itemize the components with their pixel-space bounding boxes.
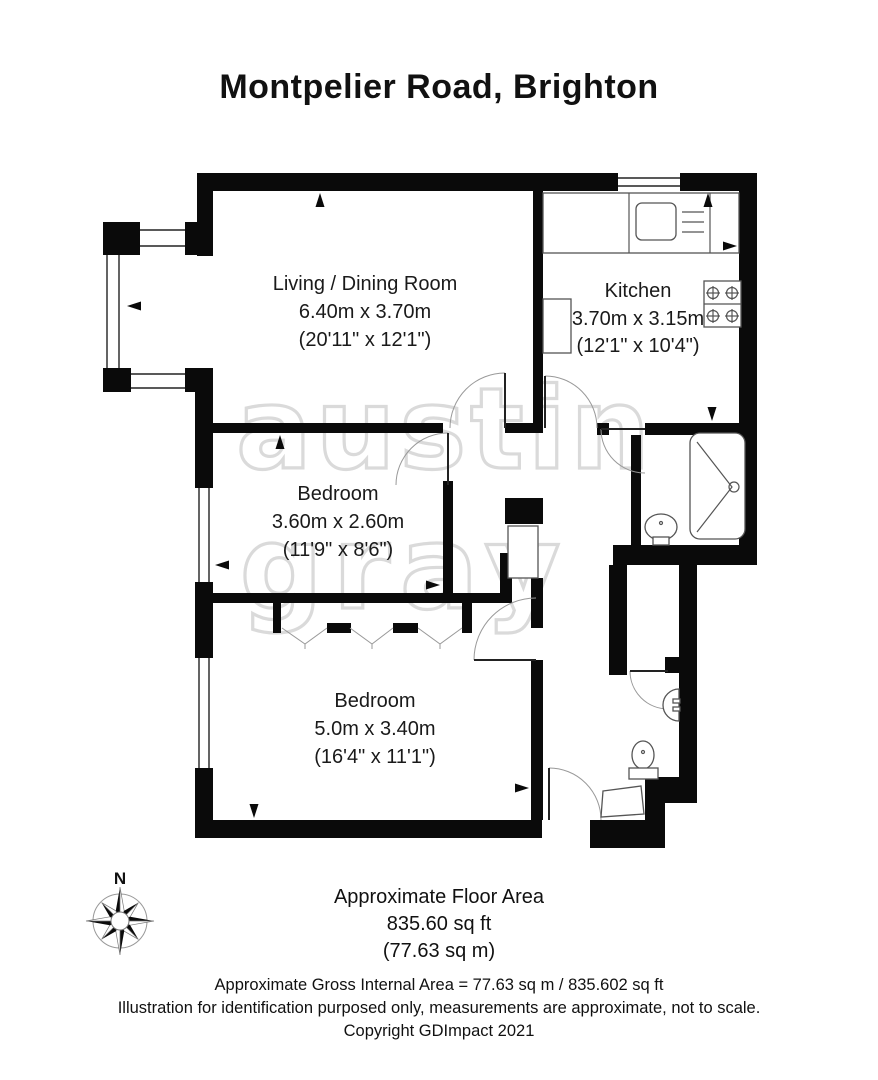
bathtub <box>690 433 745 539</box>
window-kitchen <box>618 173 680 191</box>
window-bedroom1 <box>199 488 209 582</box>
label-kitchen: Kitchen 3.70m x 3.15m (12'1" x 10'4") <box>572 280 704 357</box>
copyright-text: Copyright GDImpact 2021 <box>0 1020 878 1043</box>
bathroom-fixtures <box>645 433 745 545</box>
wc-fixtures <box>629 689 680 779</box>
floor-area-sqm: (77.63 sq m) <box>0 938 878 965</box>
svg-text:Living / Dining Room: Living / Dining Room <box>273 273 458 295</box>
page-title: Montpelier Road, Brighton <box>0 68 878 107</box>
floor-area-summary: Approximate Floor Area 835.60 sq ft (77.… <box>0 884 878 965</box>
door-entrance <box>549 768 601 820</box>
label-bedroom2: Bedroom 5.0m x 3.40m (16'4" x 11'1") <box>314 690 436 768</box>
floor-area-sqft: 835.60 sq ft <box>0 911 878 938</box>
disclaimer-text: Illustration for identification purposed… <box>0 997 878 1020</box>
gross-internal-area: Approximate Gross Internal Area = 77.63 … <box>0 974 878 997</box>
hall-cupboard <box>508 526 538 578</box>
svg-text:(20'11" x 12'1"): (20'11" x 12'1") <box>299 329 432 351</box>
svg-text:3.60m x 2.60m: 3.60m x 2.60m <box>272 511 404 533</box>
hob <box>704 281 741 327</box>
disclaimer-footer: Approximate Gross Internal Area = 77.63 … <box>0 974 878 1043</box>
svg-text:(11'9" x 8'6"): (11'9" x 8'6") <box>283 539 393 561</box>
floor-area-heading: Approximate Floor Area <box>0 884 878 911</box>
svg-text:6.40m x 3.70m: 6.40m x 3.70m <box>299 301 431 323</box>
bathroom-basin <box>645 514 677 545</box>
svg-text:Kitchen: Kitchen <box>605 280 672 302</box>
window-bedroom2 <box>199 658 209 768</box>
svg-text:Bedroom: Bedroom <box>297 483 378 505</box>
entrance-step <box>601 786 644 817</box>
toilet <box>629 741 658 779</box>
floorplan-page: { "title": "Montpelier Road, Brighton", … <box>0 0 878 1080</box>
svg-text:(12'1" x 10'4"): (12'1" x 10'4") <box>576 335 699 357</box>
wc-basin <box>663 689 680 721</box>
chimney-breast <box>543 299 571 353</box>
svg-text:5.0m x 3.40m: 5.0m x 3.40m <box>314 718 435 740</box>
door-wc <box>630 671 668 709</box>
svg-text:3.70m x 3.15m: 3.70m x 3.15m <box>572 308 704 330</box>
svg-text:Bedroom: Bedroom <box>334 690 415 712</box>
label-living-dining-room: Living / Dining Room 6.40m x 3.70m (20'1… <box>273 273 458 351</box>
sink <box>636 203 676 240</box>
svg-text:(16'4" x 11'1"): (16'4" x 11'1") <box>314 746 436 768</box>
